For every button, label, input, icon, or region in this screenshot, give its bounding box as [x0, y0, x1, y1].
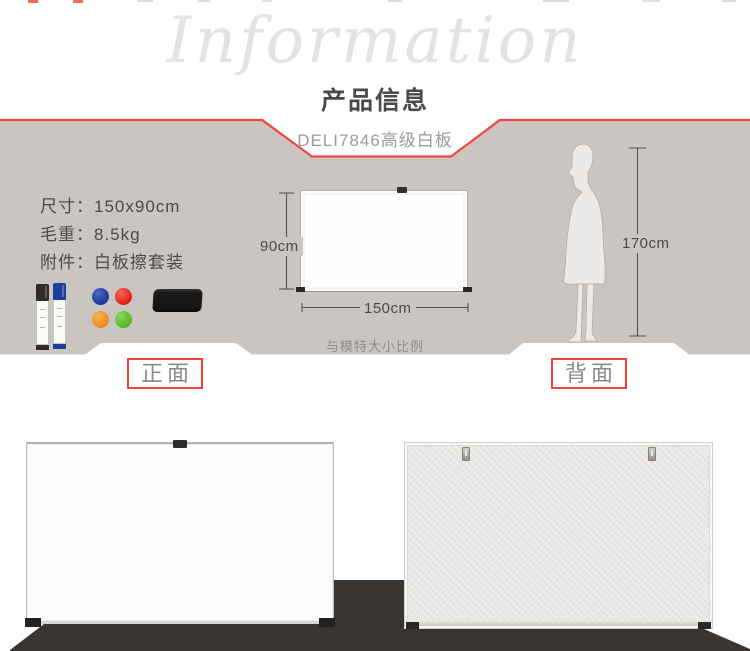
whiteboard-front-photo: [26, 442, 334, 624]
hanging-hook-left-icon: [462, 447, 470, 461]
spec-row-size: 尺寸：150x90cm: [40, 193, 184, 221]
board-clip-icon: [173, 440, 187, 448]
whiteboard-back-photo: [405, 443, 712, 628]
board-foot-right-icon: [698, 622, 711, 629]
eraser-icon: [152, 289, 203, 312]
bottom-rail: [407, 621, 710, 626]
product-model-subtitle: DELI7846高级白板: [0, 126, 750, 151]
magnet-red-icon: [115, 288, 132, 305]
board-clip-icon: [397, 187, 407, 193]
hanging-hook-right-icon: [648, 447, 656, 461]
top-edge-artifacts: [0, 0, 750, 4]
page-title: 产品信息: [0, 81, 750, 117]
board-height-label: 90cm: [256, 237, 303, 256]
board-width-label: 150cm: [360, 299, 416, 318]
scale-note: 与模特大小比例: [0, 336, 750, 355]
board-foot-left-icon: [25, 618, 41, 627]
front-view-label: 正面: [127, 358, 203, 389]
magnet-orange-icon: [92, 311, 109, 328]
information-watermark: Information: [0, 4, 750, 78]
board-foot-left-icon: [406, 622, 419, 629]
whiteboard-diagram: [296, 187, 472, 292]
spec-row-weight: 毛重：8.5kg: [40, 221, 184, 249]
spec-row-accessory: 附件：白板擦套装: [40, 249, 184, 277]
board-foot-right-icon: [319, 618, 335, 627]
back-view-label: 背面: [551, 358, 627, 389]
spec-list: 尺寸：150x90cm 毛重：8.5kg 附件：白板擦套装: [40, 193, 184, 277]
magnet-blue-icon: [92, 288, 109, 305]
board-foot-right-icon: [463, 287, 472, 292]
product-info-page: Information 产品信息 DELI7846高级白板: [0, 0, 750, 651]
board-foot-left-icon: [296, 287, 305, 292]
model-height-label: 170cm: [618, 234, 674, 253]
magnet-green-icon: [115, 311, 132, 328]
